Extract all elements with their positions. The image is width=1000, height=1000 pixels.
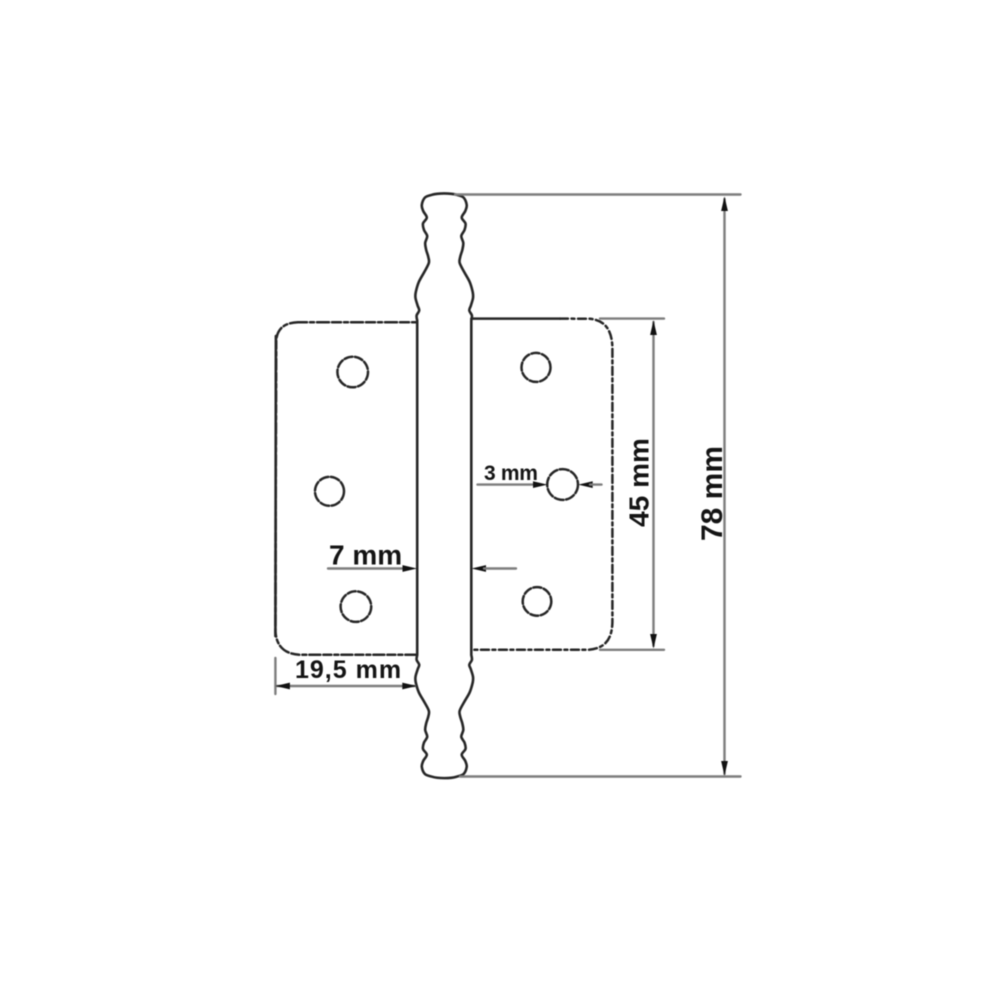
svg-text:45 mm: 45 mm bbox=[624, 438, 655, 527]
svg-text:19,5 mm: 19,5 mm bbox=[295, 656, 402, 684]
svg-text:3 mm: 3 mm bbox=[484, 462, 538, 485]
svg-text:7 mm: 7 mm bbox=[329, 540, 402, 571]
svg-text:78 mm: 78 mm bbox=[696, 446, 729, 541]
